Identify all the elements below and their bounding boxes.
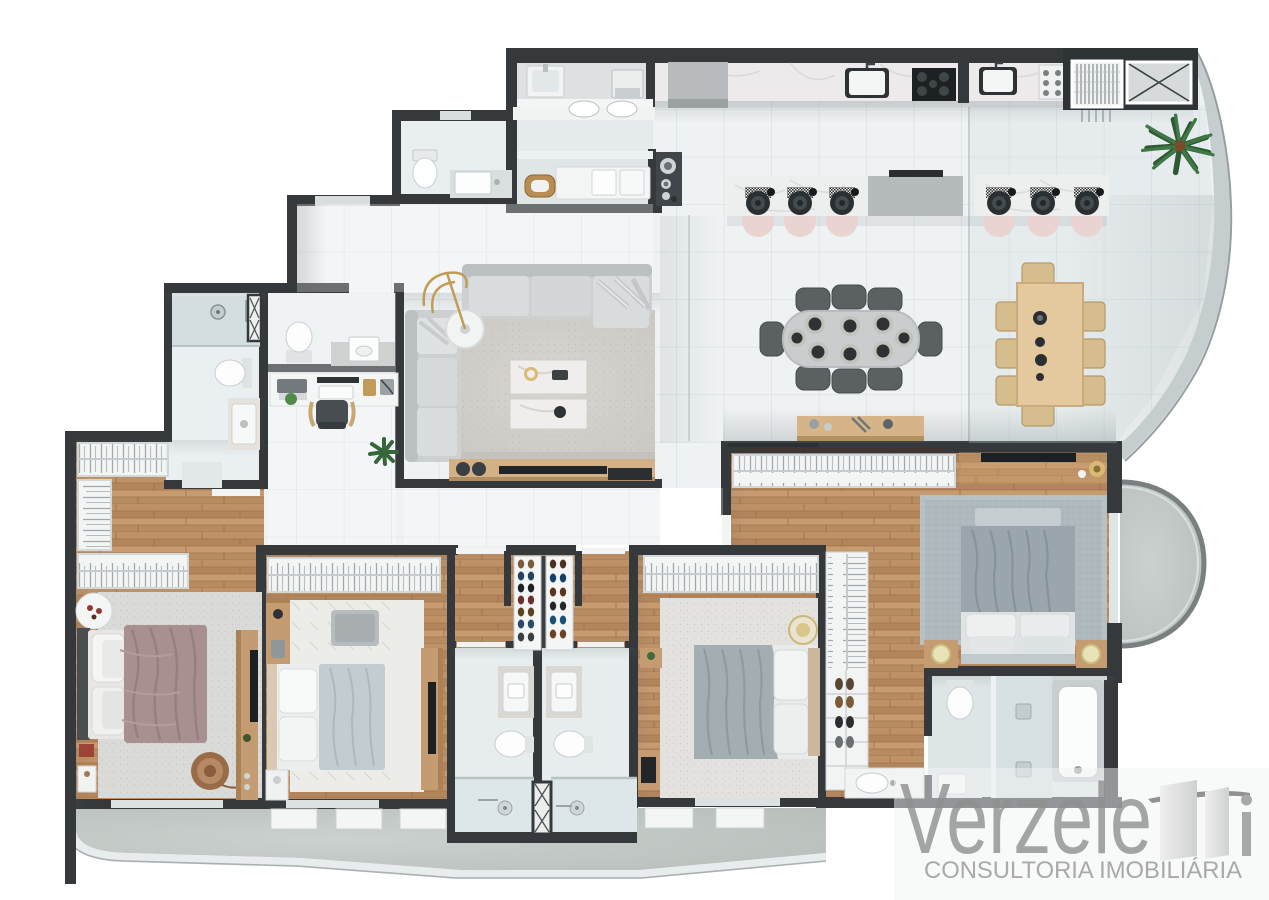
svg-text:CONSULTORIA IMOBILIÁRIA: CONSULTORIA IMOBILIÁRIA: [924, 857, 1242, 884]
